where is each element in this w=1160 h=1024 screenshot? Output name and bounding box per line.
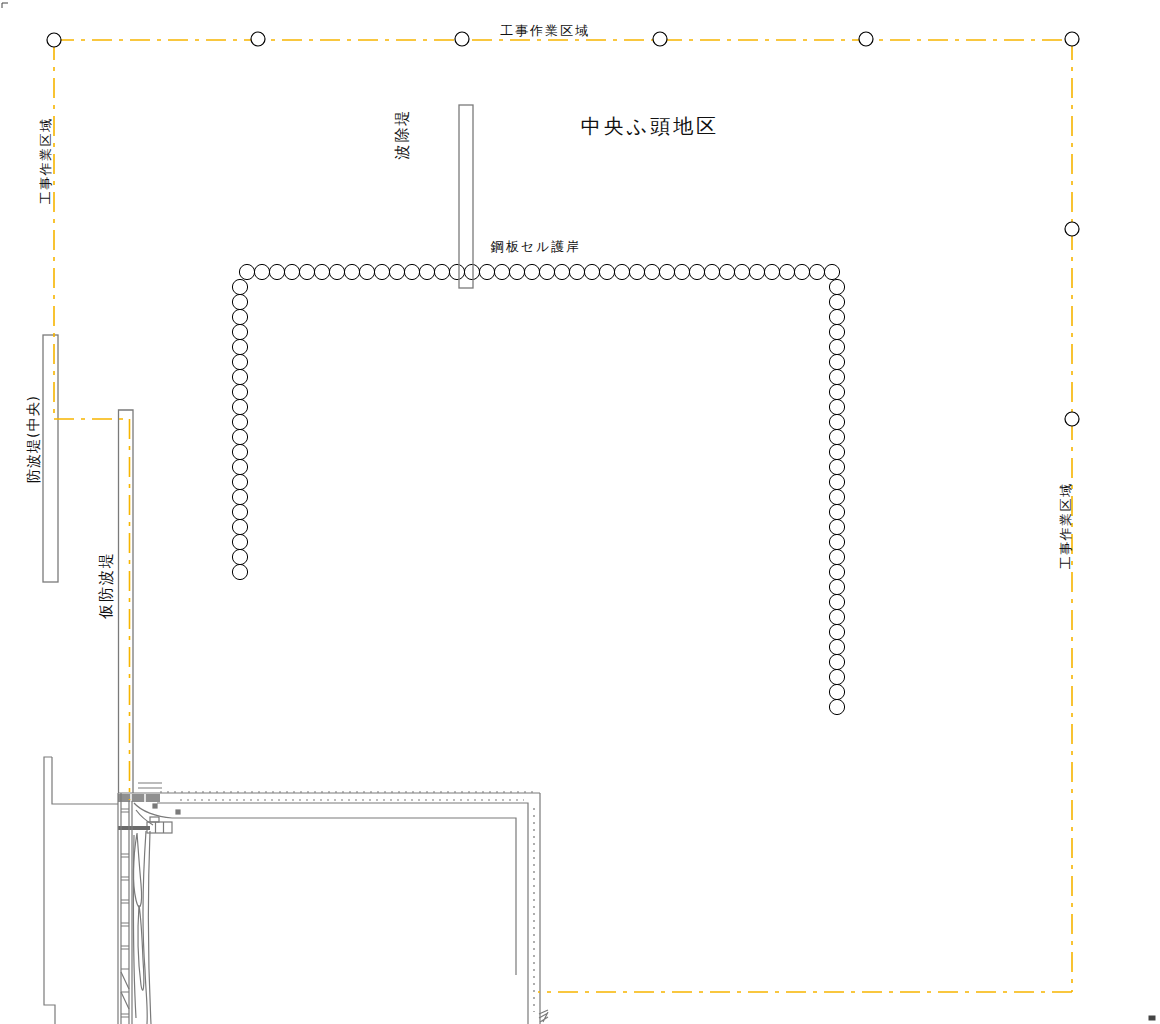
boundary-marker: [1065, 412, 1079, 426]
steel-cell-right-column: [829, 579, 844, 594]
steel-cell-top-row: [344, 264, 359, 279]
steel-cell-top-row: [419, 264, 434, 279]
steel-cell-top-row: [599, 264, 614, 279]
steel-cell-right-column: [829, 324, 844, 339]
steel-cell-left-column: [232, 444, 247, 459]
steel-cell-left-column: [232, 339, 247, 354]
steel-cell-right-column: [829, 564, 844, 579]
steel-cell-left-column: [232, 354, 247, 369]
steel-cell-right-column: [829, 609, 844, 624]
steel-cell-right-column: [829, 414, 844, 429]
steel-cell-left-column: [232, 474, 247, 489]
steel-cell-top-row: [764, 264, 779, 279]
corner-tick-bottom-right: [1149, 1016, 1155, 1020]
steel-cell-right-column: [829, 669, 844, 684]
flow-line-1: [133, 835, 136, 1018]
steel-cell-top-row: [254, 264, 269, 279]
steel-cell-right-column: [829, 354, 844, 369]
temporary-breakwater-outline: [119, 410, 134, 793]
label-work-area-right: 工事作業区域: [1058, 483, 1073, 570]
steel-cell-left-column: [232, 519, 247, 534]
steel-cell-right-column: [829, 294, 844, 309]
steel-cell-right-column: [829, 444, 844, 459]
shore-ledge-line: [52, 757, 118, 804]
breakwater-central-outline: [43, 335, 58, 582]
quay-structure: [44, 757, 548, 1024]
drawing-canvas: 工事作業区域 中央ふ頭地区 鋼板セル護岸 波除堤 工事作業区域 工事作業区域 防…: [0, 0, 1160, 1024]
flow-blob-1: [133, 833, 141, 907]
steel-cell-top-row: [539, 264, 554, 279]
steel-cell-left-column: [232, 564, 247, 579]
steel-cell-wall: [232, 264, 844, 714]
steel-cell-left-column: [232, 399, 247, 414]
steel-cell-left-column: [232, 384, 247, 399]
steel-cell-top-row: [239, 264, 254, 279]
steel-cell-top-row: [584, 264, 599, 279]
steel-cell-top-row: [464, 264, 479, 279]
steel-cell-top-row: [779, 264, 794, 279]
steel-cell-top-row: [719, 264, 734, 279]
label-wave-dike: 波除堤: [393, 109, 411, 160]
steel-cell-right-column: [829, 369, 844, 384]
steel-cell-right-column: [829, 639, 844, 654]
steel-cell-top-row: [689, 264, 704, 279]
dot-mark-2: [176, 810, 180, 814]
harbor-plan-drawing: 工事作業区域 中央ふ頭地区 鋼板セル護岸 波除堤 工事作業区域 工事作業区域 防…: [0, 0, 1160, 1024]
steel-cell-top-row: [329, 264, 344, 279]
steel-cell-right-column: [829, 549, 844, 564]
steel-cell-top-row: [374, 264, 389, 279]
wave-dike: [459, 105, 473, 288]
label-work-area-top: 工事作業区域: [500, 23, 590, 38]
steel-cell-right-column: [829, 459, 844, 474]
ladder-braces: [121, 972, 129, 1009]
steel-cell-top-row: [614, 264, 629, 279]
steel-cell-left-column: [232, 504, 247, 519]
label-temporary-breakwater: 仮防波堤: [97, 551, 115, 619]
steel-cell-right-column: [829, 534, 844, 549]
flow-line-2: [143, 831, 147, 1024]
steel-cell-top-row: [509, 264, 524, 279]
steel-cell-top-row: [479, 264, 494, 279]
steel-cell-top-row: [734, 264, 749, 279]
wave-dike-outline: [459, 105, 473, 288]
steel-cell-top-row: [809, 264, 824, 279]
steel-cell-top-row: [299, 264, 314, 279]
steel-cell-right-column: [829, 654, 844, 669]
steel-cell-left-column: [232, 549, 247, 564]
boundary-marker: [1065, 32, 1079, 46]
steel-cell-right-column: [829, 429, 844, 444]
steel-cell-top-row: [824, 264, 839, 279]
boundary-marker: [47, 33, 61, 47]
steel-cell-top-row: [404, 264, 419, 279]
steel-cell-left-column: [232, 294, 247, 309]
steel-cell-left-column: [232, 489, 247, 504]
steel-cell-right-column: [829, 624, 844, 639]
steel-cell-right-column: [829, 684, 844, 699]
steel-cell-top-row: [434, 264, 449, 279]
boundary-marker: [859, 32, 873, 46]
steel-cell-top-row: [629, 264, 644, 279]
steel-cell-left-column: [232, 414, 247, 429]
steel-cell-right-column: [829, 519, 844, 534]
steel-cell-top-row: [449, 264, 464, 279]
basin-inner: [172, 818, 516, 975]
breakwaters: [43, 335, 133, 793]
boundary-marker: [455, 32, 469, 46]
label-district-title: 中央ふ頭地区: [581, 114, 719, 138]
steel-cell-right-column: [829, 504, 844, 519]
steel-cell-top-row: [494, 264, 509, 279]
steel-cell-right-column: [829, 474, 844, 489]
steel-cell-right-column: [829, 489, 844, 504]
steel-cell-top-row: [359, 264, 374, 279]
steel-cell-top-row: [749, 264, 764, 279]
steel-cell-right-column: [829, 279, 844, 294]
corner-tick-top-left: [2, 3, 8, 8]
steel-cell-right-column: [829, 339, 844, 354]
boundary-marker: [1065, 222, 1079, 236]
steel-cell-right-column: [829, 309, 844, 324]
boundary-marker: [251, 32, 265, 46]
steel-cell-top-row: [569, 264, 584, 279]
steel-cell-right-column: [829, 384, 844, 399]
steel-cell-top-row: [269, 264, 284, 279]
steel-cell-left-column: [232, 534, 247, 549]
boundary-markers: [47, 32, 1079, 426]
label-work-area-left: 工事作業区域: [38, 118, 53, 205]
steel-cell-left-column: [232, 459, 247, 474]
steel-cell-top-row: [524, 264, 539, 279]
steel-cell-top-row: [674, 264, 689, 279]
sheet-corner-marks: [2, 3, 1155, 1020]
steel-cell-top-row: [554, 264, 569, 279]
basin-top-second: [157, 803, 528, 1024]
flow-line-3: [148, 831, 151, 1024]
fitting-box-dividers: [156, 822, 164, 833]
steel-cell-right-column: [829, 399, 844, 414]
steel-cell-top-row: [644, 264, 659, 279]
dot-mark-1: [153, 804, 157, 808]
steel-cell-left-column: [232, 279, 247, 294]
steel-cell-right-column: [829, 594, 844, 609]
label-steel-cell-revetment: 鋼板セル護岸: [490, 239, 582, 254]
steel-cell-left-column: [232, 324, 247, 339]
fitting-box-small: [150, 817, 159, 822]
steel-cell-top-row: [659, 264, 674, 279]
steel-cell-top-row: [314, 264, 329, 279]
cap-lines: [138, 783, 162, 788]
steel-cell-left-column: [232, 429, 247, 444]
steel-cell-top-row: [389, 264, 404, 279]
label-breakwater-central: 防波堤(中央): [25, 395, 41, 483]
steel-cell-right-column: [829, 699, 844, 714]
work-area-boundary: [54, 40, 1072, 992]
steel-cell-left-column: [232, 369, 247, 384]
steel-cell-top-row: [704, 264, 719, 279]
boundary-marker: [653, 32, 667, 46]
labels: 工事作業区域 中央ふ頭地区 鋼板セル護岸 波除堤 工事作業区域 工事作業区域 防…: [25, 23, 1073, 619]
steel-cell-left-column: [232, 309, 247, 324]
steel-cell-top-row: [794, 264, 809, 279]
shore-step-line: [44, 757, 55, 1024]
steel-cell-top-row: [284, 264, 299, 279]
